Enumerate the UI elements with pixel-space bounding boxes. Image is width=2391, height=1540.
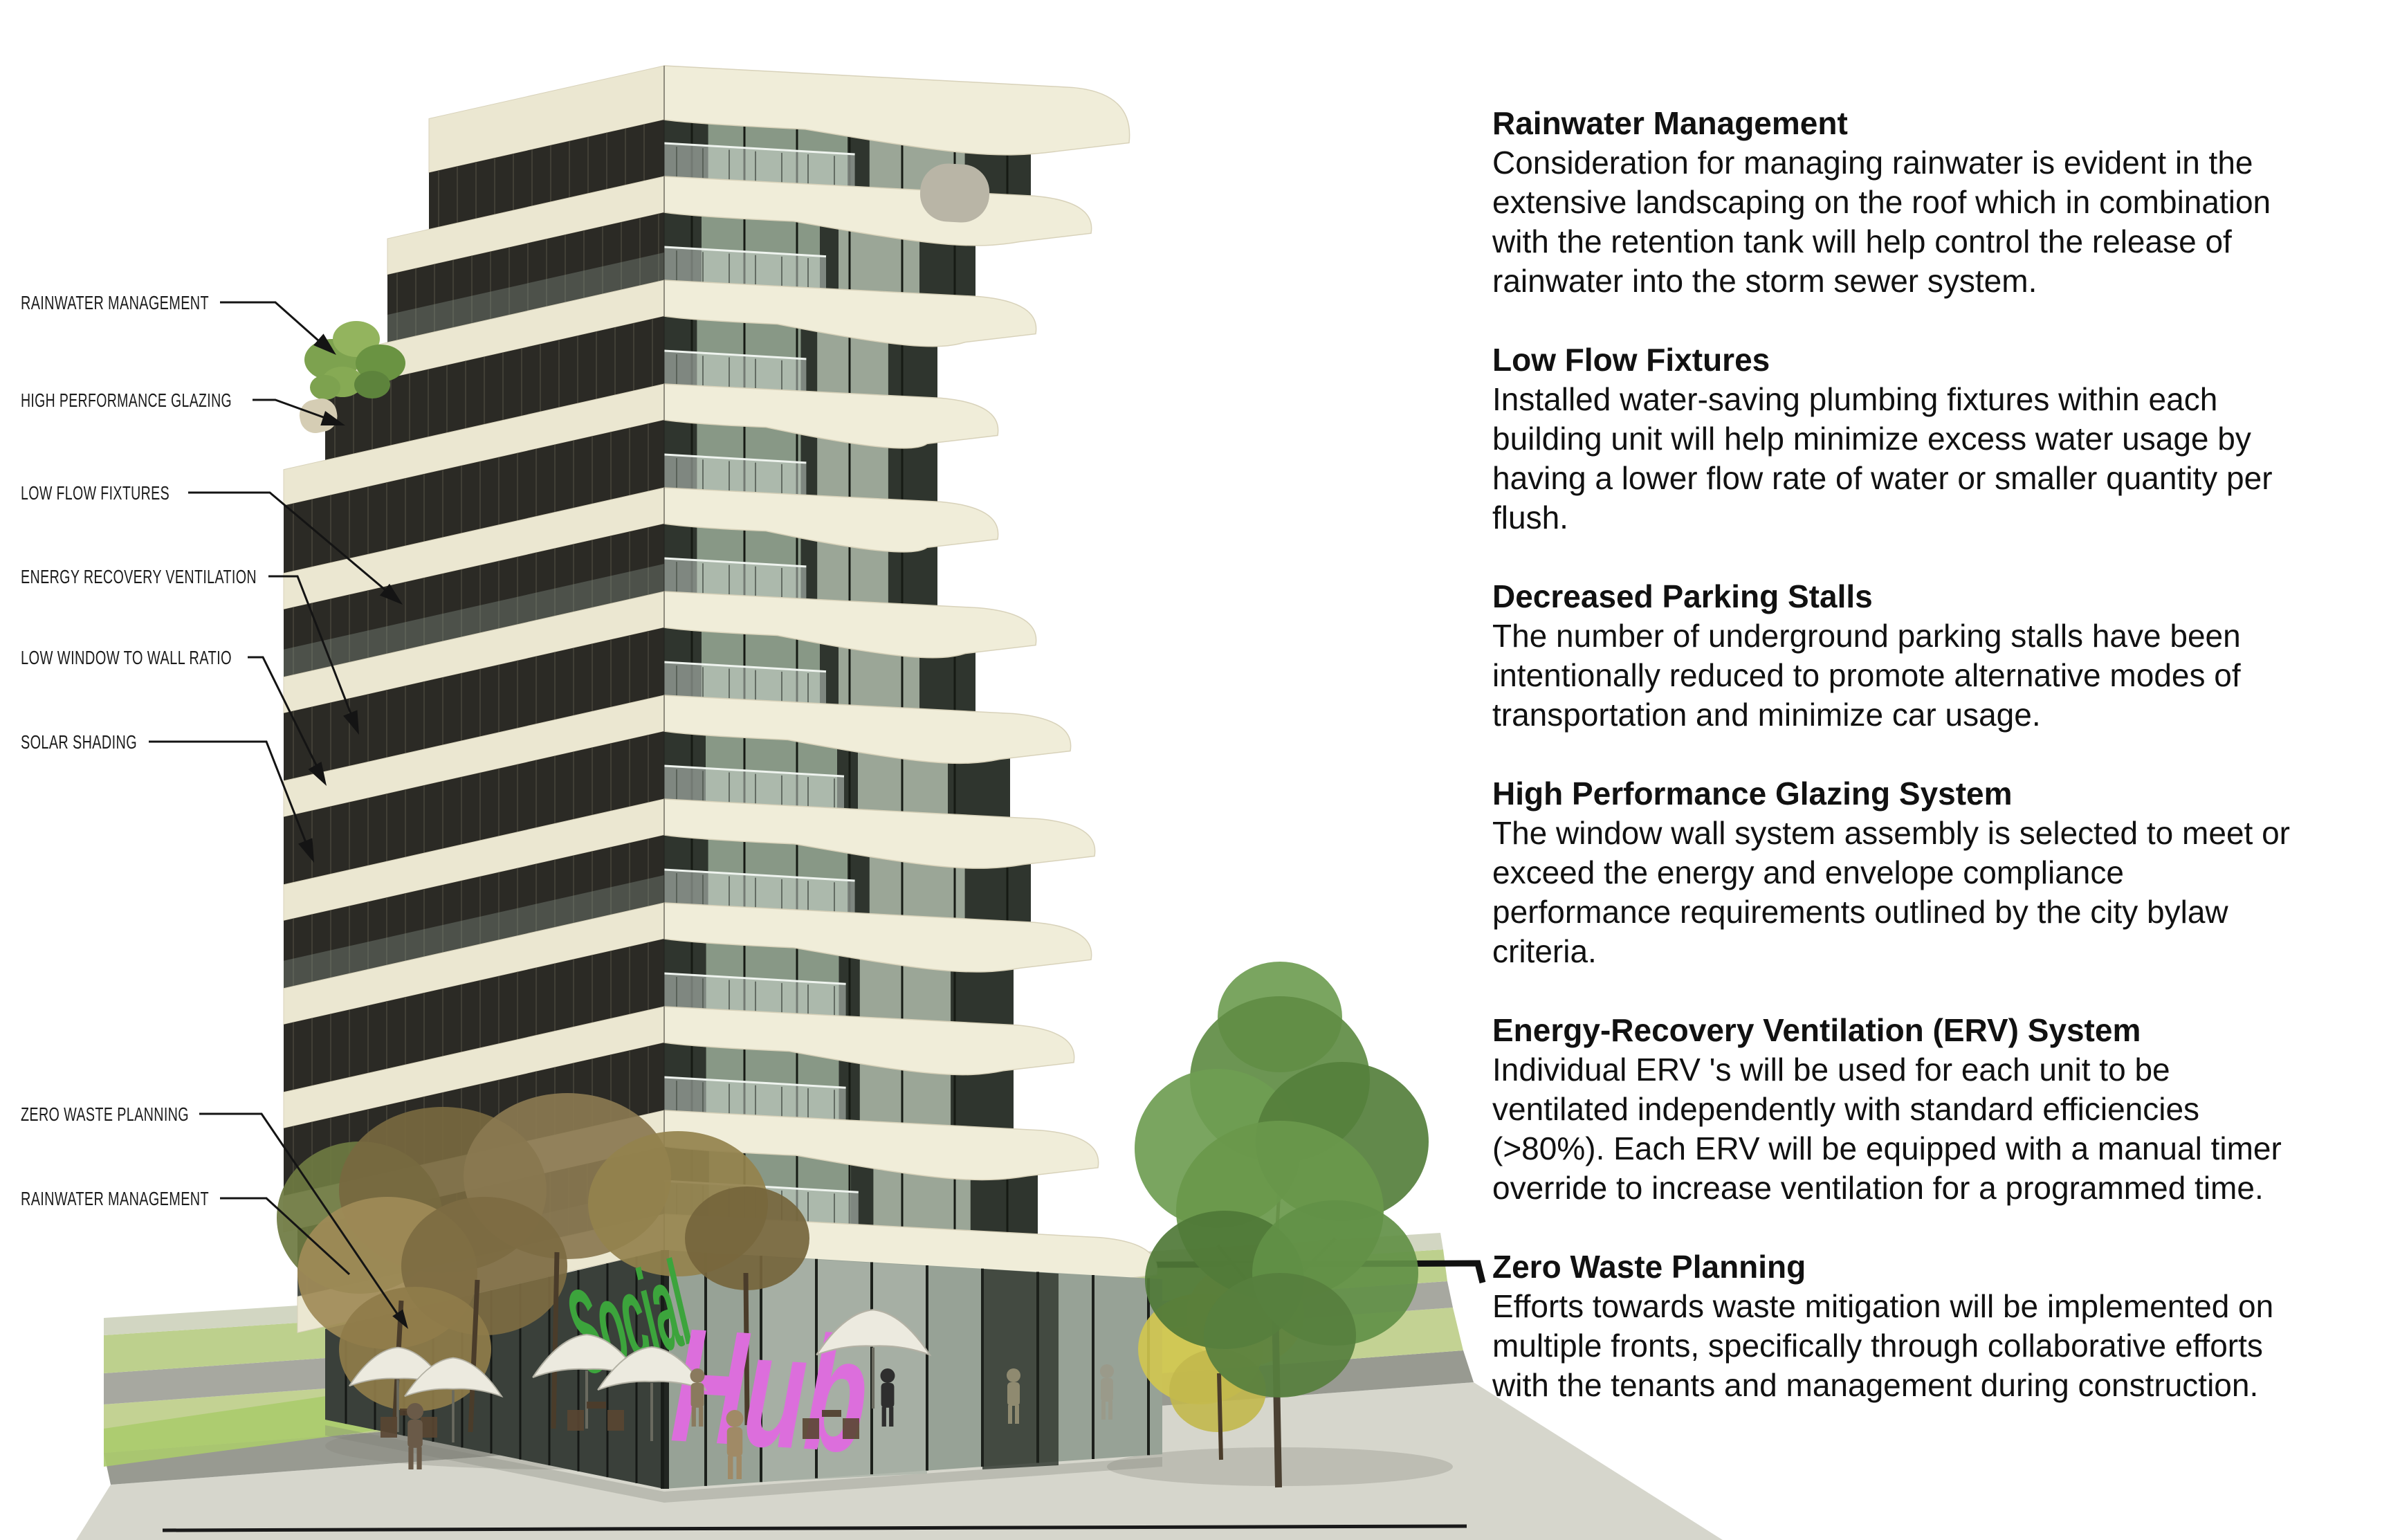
feature-heading: Rainwater Management: [1492, 104, 2381, 143]
feature-heading: High Performance Glazing System: [1492, 774, 2381, 814]
feature-section-glazing: High Performance Glazing System The wind…: [1492, 774, 2381, 971]
callout-label-window-wall-ratio: LOW WINDOW TO WALL RATIO: [21, 647, 232, 668]
feature-section-low-flow: Low Flow Fixtures Installed water-saving…: [1492, 340, 2381, 538]
feature-descriptions: Rainwater Management Consideration for m…: [1492, 104, 2381, 1445]
feature-section-rainwater: Rainwater Management Consideration for m…: [1492, 104, 2381, 301]
feature-section-parking: Decreased Parking Stalls The number of u…: [1492, 577, 2381, 735]
callout-label-solar-shading: SOLAR SHADING: [21, 731, 137, 753]
architecture-sheet: Social Hub RAINWATER MANAGEMENT HIGH PER…: [0, 0, 2391, 1540]
feature-body: Consideration for managing rainwater is …: [1492, 143, 2381, 301]
callout-label-low-flow: LOW FLOW FIXTURES: [21, 482, 170, 504]
feature-body: Installed water-saving plumbing fixtures…: [1492, 380, 2381, 538]
feature-heading: Zero Waste Planning: [1492, 1247, 2381, 1287]
callout-label-rainwater-roof: RAINWATER MANAGEMENT: [21, 292, 209, 313]
feature-body: The window wall system assembly is selec…: [1492, 814, 2381, 971]
callout-label-glazing: HIGH PERFORMANCE GLAZING: [21, 389, 232, 411]
feature-heading: Decreased Parking Stalls: [1492, 577, 2381, 616]
feature-body: The number of underground parking stalls…: [1492, 616, 2381, 735]
callout-label-erv: ENERGY RECOVERY VENTILATION: [21, 566, 257, 587]
feature-body: Efforts towards waste mitigation will be…: [1492, 1287, 2381, 1405]
callout-label-rainwater-ground: RAINWATER MANAGEMENT: [21, 1188, 209, 1209]
feature-section-zero-waste: Zero Waste Planning Efforts towards wast…: [1492, 1247, 2381, 1405]
callout-label-zero-waste: ZERO WASTE PLANNING: [21, 1103, 189, 1125]
feature-heading: Energy-Recovery Ventilation (ERV) System: [1492, 1011, 2381, 1050]
feature-section-erv: Energy-Recovery Ventilation (ERV) System…: [1492, 1011, 2381, 1208]
feature-body: Individual ERV 's will be used for each …: [1492, 1050, 2381, 1208]
feature-heading: Low Flow Fixtures: [1492, 340, 2381, 380]
